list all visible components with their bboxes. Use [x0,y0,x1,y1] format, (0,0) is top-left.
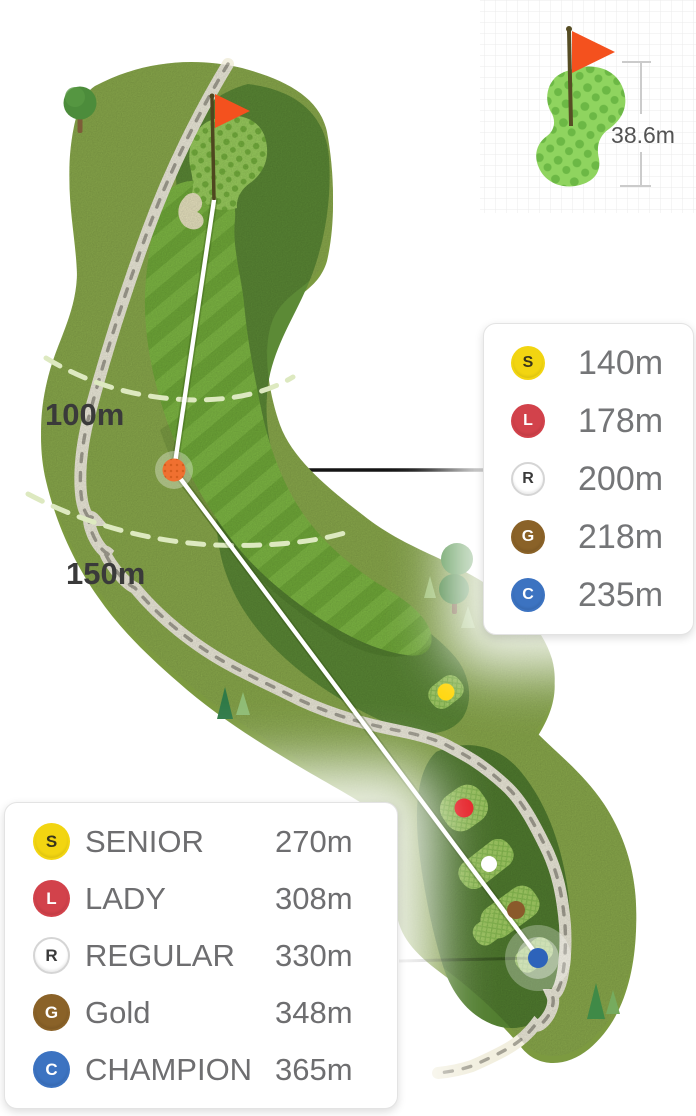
flag-pole-knob [210,94,215,99]
tee-distance-value: 308m [275,881,397,917]
tee-distance-value: 365m [275,1052,397,1088]
tee-row-lady: L LADY 308m [5,880,397,917]
distance-arc-label-100m: 100m [45,399,124,430]
champion-tee-badge: C [33,1051,70,1088]
senior-tee-badge: S [33,823,70,860]
lady-tee-badge: L [511,404,545,438]
carry-distance-value: 218m [578,518,663,557]
carry-row-regular: R 200m [484,460,693,499]
tee-name: LADY [85,881,166,917]
carry-row-gold: G 218m [484,518,693,557]
lady-tee-marker [455,799,474,818]
gold-tee-marker [507,901,525,919]
golf-hole-map: 100m 150m 38.6m S 140m L 178m R 200m G 2… [0,0,696,1116]
flag-pole [212,97,214,200]
green-detail-inset [480,0,696,213]
carry-distance-panel: S 140m L 178m R 200m G 218m C 235m [483,323,694,635]
tee-row-regular: R REGULAR 330m [5,937,397,974]
carry-row-senior: S 140m [484,344,693,383]
landing-ball-marker [155,451,193,489]
flag-pole [569,30,571,126]
tee-name: CHAMPION [85,1052,252,1088]
tee-distance-value: 270m [275,824,397,860]
senior-tee-badge: S [511,346,545,380]
tee-name: Gold [85,995,150,1031]
round-tree [439,574,469,604]
lady-tee-badge: L [33,880,70,917]
round-tree [441,543,473,575]
carry-distance-value: 140m [578,344,663,383]
tee-name: SENIOR [85,824,204,860]
regular-tee-badge: R [511,462,545,496]
gold-tee-badge: G [511,520,545,554]
champion-tee-marker [528,948,548,968]
tee-row-gold: G Gold 348m [5,994,397,1031]
tee-distance-value: 348m [275,995,397,1031]
regular-tee-badge: R [33,937,70,974]
regular-tee-marker [481,856,497,872]
ball-dimples [163,459,186,482]
carry-distance-value: 178m [578,402,663,441]
tee-distance-panel: S SENIOR 270m L LADY 308m R REGULAR 330m… [4,802,398,1109]
gold-tee-badge: G [33,994,70,1031]
carry-row-lady: L 178m [484,402,693,441]
tee-row-champion: C CHAMPION 365m [5,1051,397,1088]
flag-pole-knob [566,26,572,32]
tee-row-senior: S SENIOR 270m [5,823,397,860]
carry-distance-value: 235m [578,576,663,615]
champion-tee-badge: C [511,578,545,612]
distance-arc-label-150m: 150m [66,558,145,589]
tree-highlight [65,87,85,107]
senior-tee-marker [438,684,455,701]
carry-row-champion: C 235m [484,576,693,615]
tee-name: REGULAR [85,938,235,974]
green-depth-measurement: 38.6m [601,124,685,147]
carry-distance-value: 200m [578,460,663,499]
tee-distance-value: 330m [275,938,397,974]
